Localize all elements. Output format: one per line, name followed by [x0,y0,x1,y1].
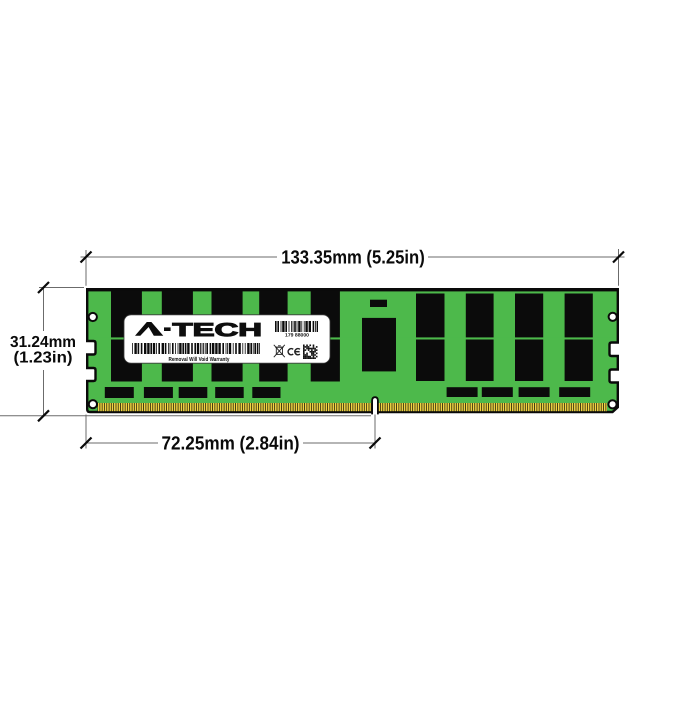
svg-text:179 88000: 179 88000 [285,332,309,338]
svg-text:72.25mm (2.84in): 72.25mm (2.84in) [162,434,300,455]
svg-text:TECH: TECH [173,319,263,340]
svg-text:31.24mm: 31.24mm [10,334,76,351]
svg-text:133.35mm (5.25in): 133.35mm (5.25in) [281,248,425,269]
svg-text:Removal Will Void Warranty: Removal Will Void Warranty [169,356,231,363]
svg-text:(1.23in): (1.23in) [14,350,73,367]
